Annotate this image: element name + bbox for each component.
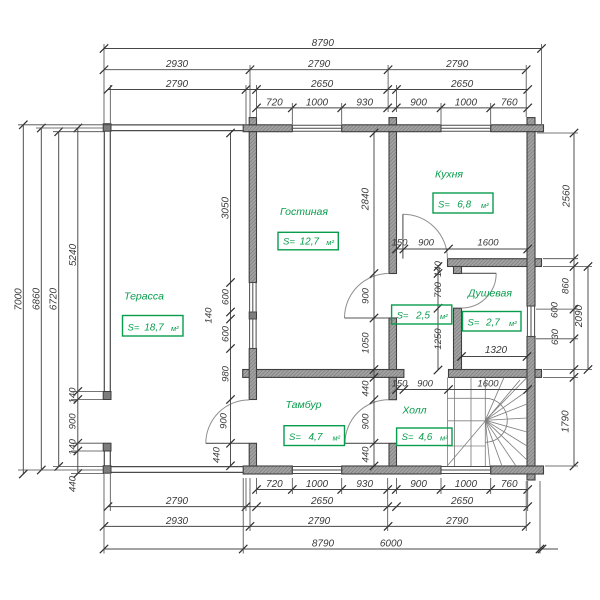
svg-text:900: 900: [418, 238, 435, 249]
svg-text:930: 930: [356, 479, 373, 490]
svg-text:150: 150: [392, 238, 409, 249]
svg-text:900: 900: [361, 287, 372, 304]
svg-text:440: 440: [361, 446, 372, 463]
svg-text:2930: 2930: [165, 516, 189, 527]
svg-text:6000: 6000: [380, 539, 403, 550]
svg-text:м²: м²: [440, 312, 448, 321]
svg-text:2650: 2650: [450, 496, 474, 507]
svg-text:8790: 8790: [312, 539, 335, 550]
svg-text:700: 700: [433, 281, 444, 298]
svg-text:S=: S=: [438, 200, 450, 211]
svg-text:140: 140: [68, 438, 79, 455]
svg-text:Кухня: Кухня: [435, 169, 463, 181]
svg-text:м²: м²: [481, 201, 489, 210]
svg-text:150: 150: [392, 379, 409, 390]
svg-text:600: 600: [550, 301, 561, 318]
svg-text:S=: S=: [402, 432, 414, 443]
svg-text:440: 440: [212, 446, 223, 463]
svg-text:140: 140: [68, 387, 79, 404]
svg-text:440: 440: [361, 380, 372, 397]
svg-text:м²: м²: [326, 238, 334, 247]
svg-text:Душевая: Душевая: [467, 288, 512, 300]
svg-text:760: 760: [501, 479, 518, 490]
svg-text:900: 900: [410, 97, 427, 108]
svg-text:S=: S=: [283, 236, 295, 247]
svg-text:2790: 2790: [165, 79, 189, 90]
svg-text:900: 900: [361, 413, 372, 430]
svg-text:1000: 1000: [306, 97, 329, 108]
svg-text:2650: 2650: [310, 79, 334, 90]
svg-text:1050: 1050: [361, 332, 372, 354]
svg-text:1000: 1000: [455, 97, 478, 108]
svg-text:140: 140: [433, 260, 444, 277]
svg-text:140: 140: [204, 307, 215, 324]
svg-text:930: 930: [356, 97, 373, 108]
svg-text:5240: 5240: [68, 243, 79, 266]
svg-text:м²: м²: [171, 324, 179, 333]
svg-text:2930: 2930: [165, 59, 189, 70]
svg-text:Терасса: Терасса: [124, 291, 164, 303]
svg-text:720: 720: [266, 97, 283, 108]
svg-text:720: 720: [266, 479, 283, 490]
svg-text:900: 900: [68, 413, 79, 430]
svg-text:2090: 2090: [574, 304, 585, 328]
svg-text:м²: м²: [333, 434, 341, 443]
svg-text:4,6: 4,6: [418, 432, 432, 443]
svg-text:900: 900: [219, 412, 230, 429]
svg-text:2,5: 2,5: [415, 311, 430, 322]
svg-text:Холл: Холл: [401, 405, 426, 417]
svg-text:S=: S=: [289, 432, 301, 443]
svg-text:м²: м²: [440, 434, 448, 443]
svg-text:Гостиная: Гостиная: [280, 206, 328, 218]
svg-text:6,8: 6,8: [457, 200, 471, 211]
svg-text:7000: 7000: [13, 288, 24, 311]
svg-text:1250: 1250: [433, 328, 444, 350]
svg-text:1000: 1000: [306, 479, 329, 490]
svg-text:2790: 2790: [445, 516, 469, 527]
svg-text:4,7: 4,7: [309, 432, 323, 443]
svg-text:2790: 2790: [165, 496, 189, 507]
svg-text:1600: 1600: [477, 238, 499, 249]
svg-text:900: 900: [410, 479, 427, 490]
svg-text:S=: S=: [397, 311, 409, 322]
svg-text:600: 600: [221, 325, 232, 342]
svg-text:980: 980: [221, 365, 232, 382]
svg-text:2650: 2650: [310, 496, 334, 507]
svg-text:6860: 6860: [31, 287, 42, 310]
svg-text:600: 600: [221, 288, 232, 305]
svg-text:440: 440: [68, 475, 79, 492]
svg-text:2790: 2790: [307, 516, 331, 527]
svg-text:8790: 8790: [312, 38, 335, 49]
svg-text:2790: 2790: [307, 59, 331, 70]
svg-text:2,7: 2,7: [485, 318, 500, 329]
svg-text:S=: S=: [128, 323, 140, 334]
svg-text:630: 630: [550, 328, 561, 345]
svg-text:Тамбур: Тамбур: [286, 399, 322, 411]
svg-text:12,7: 12,7: [300, 236, 320, 247]
svg-text:6720: 6720: [49, 288, 60, 311]
svg-text:1790: 1790: [561, 410, 572, 433]
svg-text:900: 900: [417, 379, 434, 390]
svg-text:2840: 2840: [361, 187, 372, 211]
svg-text:S=: S=: [468, 318, 480, 329]
svg-text:1320: 1320: [485, 345, 508, 356]
svg-text:18,7: 18,7: [144, 323, 164, 334]
svg-text:2650: 2650: [450, 79, 474, 90]
svg-text:860: 860: [561, 277, 572, 294]
svg-text:760: 760: [501, 97, 518, 108]
svg-text:м²: м²: [509, 319, 517, 328]
svg-text:3050: 3050: [221, 196, 232, 219]
svg-text:1600: 1600: [477, 379, 499, 390]
svg-text:1000: 1000: [455, 479, 478, 490]
svg-text:2790: 2790: [445, 59, 469, 70]
svg-text:2560: 2560: [562, 184, 573, 208]
